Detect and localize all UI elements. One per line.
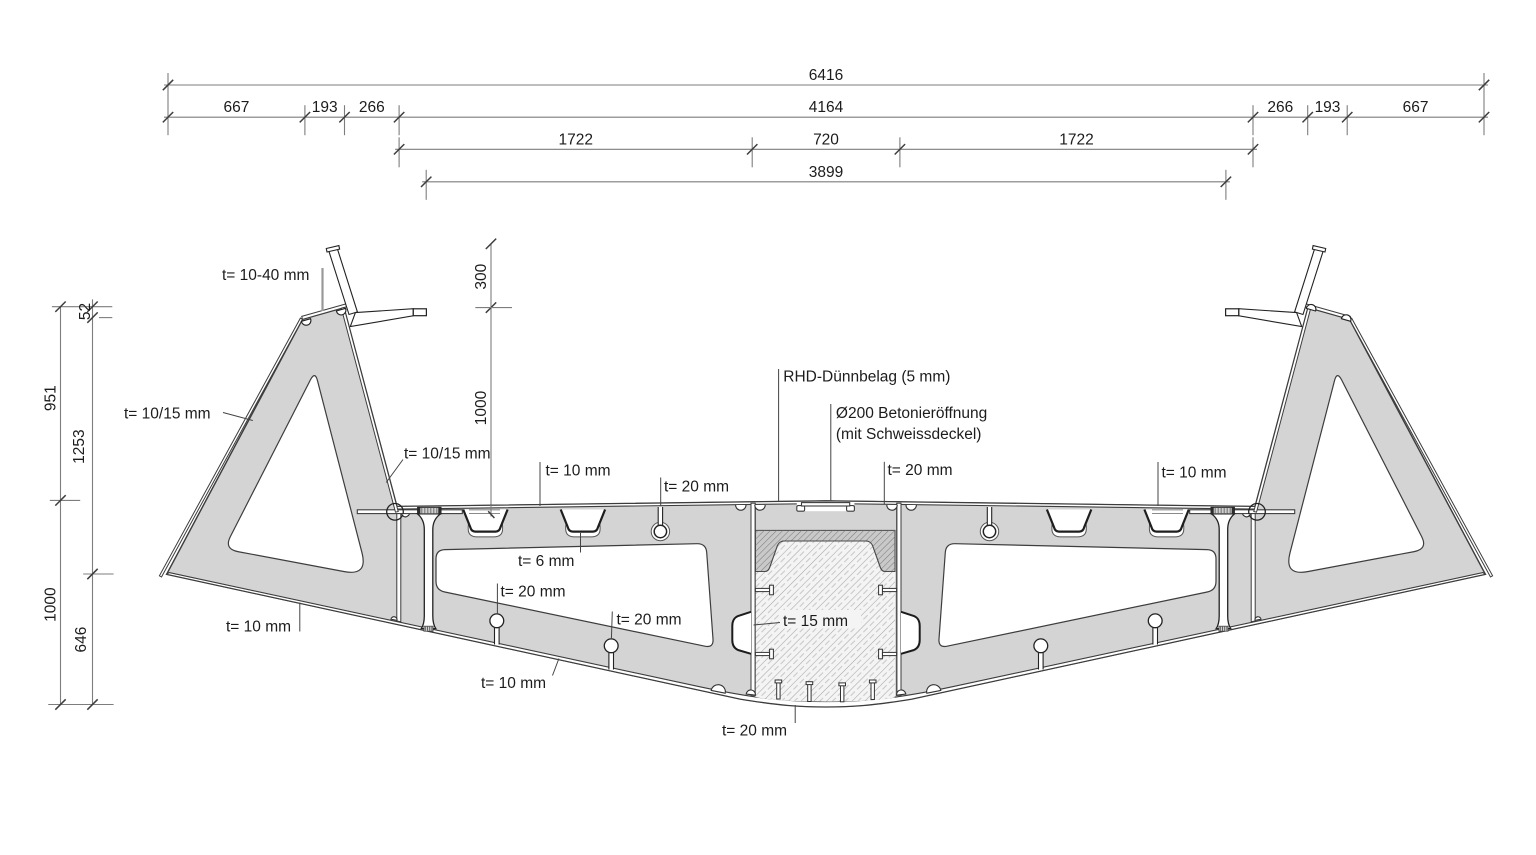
svg-text:193: 193 [312, 99, 338, 116]
svg-text:t= 10 mm: t= 10 mm [481, 675, 546, 692]
svg-text:t= 20 mm: t= 20 mm [501, 584, 566, 601]
svg-text:266: 266 [359, 99, 385, 116]
svg-text:266: 266 [1267, 99, 1293, 116]
svg-text:3899: 3899 [809, 164, 843, 181]
svg-text:6416: 6416 [809, 67, 843, 84]
svg-text:646: 646 [73, 627, 90, 653]
svg-text:t= 10 mm: t= 10 mm [1162, 465, 1227, 482]
svg-text:1253: 1253 [71, 429, 88, 463]
svg-text:t= 10/15 mm: t= 10/15 mm [124, 406, 211, 423]
svg-text:t= 20 mm: t= 20 mm [617, 612, 682, 629]
svg-text:RHD-Dünnbelag (5 mm): RHD-Dünnbelag (5 mm) [783, 369, 950, 386]
svg-text:1722: 1722 [558, 131, 592, 148]
svg-text:t= 15 mm: t= 15 mm [783, 613, 848, 630]
svg-text:t= 10 mm: t= 10 mm [546, 463, 611, 480]
svg-text:1722: 1722 [1059, 131, 1093, 148]
svg-text:1000: 1000 [42, 587, 59, 622]
svg-text:951: 951 [42, 385, 59, 411]
svg-text:667: 667 [223, 99, 249, 116]
svg-text:667: 667 [1403, 99, 1429, 116]
svg-text:t= 10-40 mm: t= 10-40 mm [222, 267, 309, 284]
svg-text:Ø200 Betonieröffnung: Ø200 Betonieröffnung [836, 405, 987, 422]
svg-text:t= 20 mm: t= 20 mm [664, 479, 729, 496]
svg-text:t= 20 mm: t= 20 mm [722, 723, 787, 740]
svg-text:300: 300 [473, 263, 490, 289]
svg-text:193: 193 [1315, 99, 1341, 116]
svg-text:4164: 4164 [809, 99, 844, 116]
svg-text:1000: 1000 [473, 390, 490, 425]
svg-text:t= 20 mm: t= 20 mm [888, 462, 953, 479]
svg-text:t= 6 mm: t= 6 mm [518, 553, 574, 570]
svg-text:720: 720 [813, 131, 839, 148]
svg-text:(mit Schweissdeckel): (mit Schweissdeckel) [836, 426, 982, 443]
svg-text:52: 52 [77, 303, 94, 320]
svg-text:t= 10/15 mm: t= 10/15 mm [404, 446, 491, 463]
svg-text:t= 10 mm: t= 10 mm [226, 619, 291, 636]
